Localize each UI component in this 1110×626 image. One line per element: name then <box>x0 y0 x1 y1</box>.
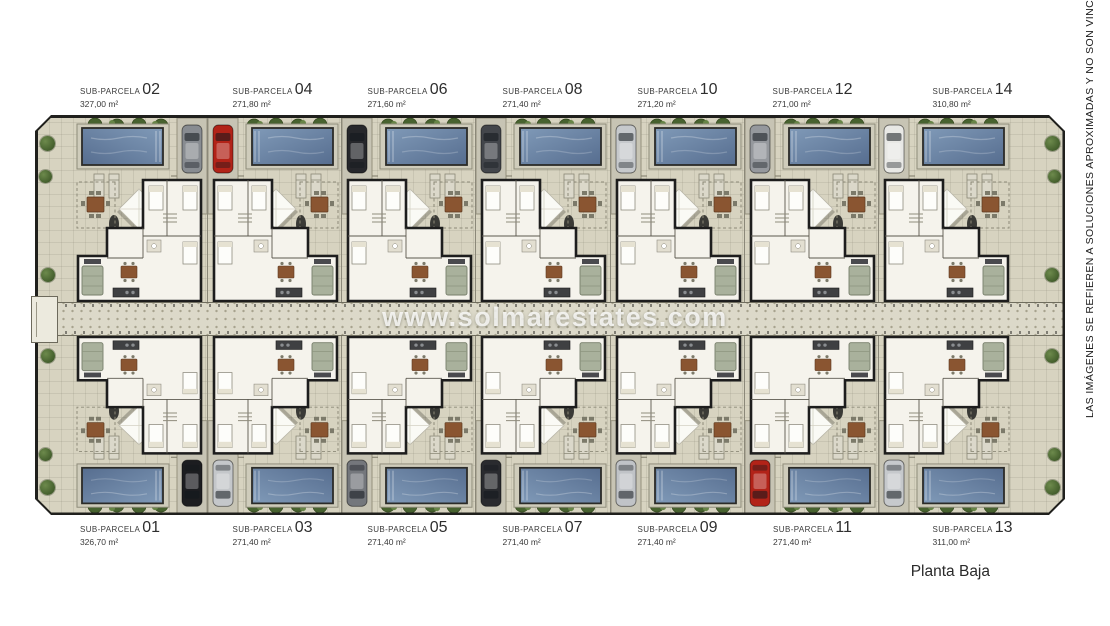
car-icon <box>884 460 904 506</box>
parcel-number: 04 <box>295 81 313 98</box>
parcel-tile-13 <box>878 336 1062 513</box>
parcel-label-prefix: SUB-PARCELA <box>637 87 697 96</box>
parcel-tile-07 <box>475 336 609 513</box>
car-icon <box>750 125 770 173</box>
edge-tree <box>39 448 52 461</box>
parcel-number: 07 <box>565 519 583 536</box>
parcel-label-prefix: SUB-PARCELA <box>232 87 292 96</box>
parcel-label-text: SUB-PARCELA06271,60 m² <box>367 82 447 109</box>
parcel-area: 271,00 m² <box>772 100 852 109</box>
floor-title: Planta Baja <box>911 563 990 581</box>
parcel-label-text: SUB-PARCELA08271,40 m² <box>502 82 582 109</box>
car-icon <box>616 125 636 173</box>
parcel-tile-06 <box>341 118 475 302</box>
parcel-label-text: SUB-PARCELA01326,70 m² <box>80 520 160 547</box>
parcel-label-08: SUB-PARCELA08271,40 m² <box>475 82 610 109</box>
parcel-number: 06 <box>430 81 448 98</box>
parcel-number: 10 <box>700 81 718 98</box>
parcel-number: 11 <box>835 519 852 536</box>
parcel-row-bottom <box>38 336 1063 513</box>
parcel-area: 271,80 m² <box>232 100 312 109</box>
edge-tree <box>1045 480 1060 495</box>
car-icon <box>213 460 233 506</box>
parcel-number: 09 <box>700 519 718 536</box>
parcel-area: 271,40 m² <box>502 100 582 109</box>
pool <box>649 463 741 506</box>
parcel-label-09: SUB-PARCELA09271,40 m² <box>610 520 745 547</box>
car-icon <box>347 125 367 173</box>
parcel-area: 311,00 m² <box>932 538 1012 547</box>
parcel-label-prefix: SUB-PARCELA <box>637 525 697 534</box>
car-icon <box>884 125 904 173</box>
edge-tree <box>39 170 52 183</box>
parcel-label-14: SUB-PARCELA14310,80 m² <box>880 82 1065 109</box>
car-icon <box>347 460 367 506</box>
parcel-tile-08 <box>475 118 609 302</box>
parcel-tile-04 <box>207 118 341 302</box>
parcel-label-prefix: SUB-PARCELA <box>232 525 292 534</box>
parcel-number: 02 <box>142 81 160 98</box>
parcel-label-text: SUB-PARCELA14310,80 m² <box>932 82 1012 109</box>
parcel-label-13: SUB-PARCELA13311,00 m² <box>880 520 1065 547</box>
pool <box>77 124 169 169</box>
pool <box>380 124 472 169</box>
parcel-number: 08 <box>565 81 583 98</box>
parcel-label-text: SUB-PARCELA13311,00 m² <box>932 520 1012 547</box>
parcel-area: 271,40 m² <box>773 538 852 547</box>
parcel-label-06: SUB-PARCELA06271,60 m² <box>340 82 475 109</box>
edge-tree <box>40 136 55 151</box>
edge-tree <box>1048 448 1061 461</box>
parcel-label-text: SUB-PARCELA09271,40 m² <box>637 520 717 547</box>
parcel-number: 05 <box>430 519 448 536</box>
edge-tree <box>41 268 55 282</box>
parcel-label-text: SUB-PARCELA02327,00 m² <box>80 82 160 109</box>
car-icon <box>182 125 202 173</box>
parcel-label-11: SUB-PARCELA11271,40 m² <box>745 520 880 547</box>
pool <box>917 124 1009 169</box>
parcel-label-03: SUB-PARCELA03271,40 m² <box>205 520 340 547</box>
parcel-area: 327,00 m² <box>80 100 160 109</box>
parcel-number: 01 <box>142 519 160 536</box>
parcel-row-top <box>38 118 1063 302</box>
parcel-tile-05 <box>341 336 475 513</box>
parcel-label-text: SUB-PARCELA04271,80 m² <box>232 82 312 109</box>
parcel-label-prefix: SUB-PARCELA <box>773 525 833 534</box>
car-icon <box>750 460 770 506</box>
car-icon <box>213 125 233 173</box>
parcel-area: 271,40 m² <box>637 538 717 547</box>
disclaimer-vertical-text: LAS IMÁGENES SE REFIEREN A SOLUCIONES AP… <box>1084 0 1096 418</box>
parcel-label-text: SUB-PARCELA11271,40 m² <box>773 520 852 547</box>
site-plan-page: SUB-PARCELA02327,00 m²SUB-PARCELA04271,8… <box>0 0 1110 626</box>
parcel-label-prefix: SUB-PARCELA <box>502 87 562 96</box>
parcel-label-text: SUB-PARCELA05271,40 m² <box>367 520 447 547</box>
parcel-label-07: SUB-PARCELA07271,40 m² <box>475 520 610 547</box>
pool <box>649 124 741 169</box>
parcel-tile-10 <box>610 118 744 302</box>
parcel-tile-11 <box>744 336 878 513</box>
parcel-label-prefix: SUB-PARCELA <box>502 525 562 534</box>
pool <box>917 463 1009 506</box>
car-icon <box>182 460 202 506</box>
parcel-label-prefix: SUB-PARCELA <box>80 525 140 534</box>
edge-tree <box>1045 349 1059 363</box>
parcel-area: 271,40 m² <box>232 538 312 547</box>
edge-tree <box>40 480 55 495</box>
parcel-label-text: SUB-PARCELA12271,00 m² <box>772 82 852 109</box>
parcel-tile-02 <box>38 118 207 302</box>
pool <box>246 124 338 169</box>
parcel-label-prefix: SUB-PARCELA <box>932 525 992 534</box>
pool <box>77 463 169 506</box>
edge-tree <box>41 349 55 363</box>
parcel-number: 14 <box>995 81 1013 98</box>
pool <box>783 463 875 506</box>
pool <box>246 463 338 506</box>
parcel-label-prefix: SUB-PARCELA <box>80 87 140 96</box>
parcel-label-prefix: SUB-PARCELA <box>367 87 427 96</box>
pool <box>783 124 875 169</box>
parcel-label-05: SUB-PARCELA05271,40 m² <box>340 520 475 547</box>
car-icon <box>481 460 501 506</box>
parcel-area: 271,40 m² <box>367 538 447 547</box>
parcel-label-12: SUB-PARCELA12271,00 m² <box>745 82 880 109</box>
sidewalk-detail-box <box>31 296 58 343</box>
parcel-number: 03 <box>295 519 313 536</box>
parcel-label-text: SUB-PARCELA07271,40 m² <box>502 520 582 547</box>
parcel-label-prefix: SUB-PARCELA <box>772 87 832 96</box>
parcel-area: 310,80 m² <box>932 100 1012 109</box>
parcel-label-prefix: SUB-PARCELA <box>367 525 427 534</box>
parcel-label-02: SUB-PARCELA02327,00 m² <box>35 82 205 109</box>
edge-tree <box>1045 268 1059 282</box>
parcel-tile-12 <box>744 118 878 302</box>
parcel-tile-09 <box>610 336 744 513</box>
parcel-label-10: SUB-PARCELA10271,20 m² <box>610 82 745 109</box>
pool <box>514 124 606 169</box>
watermark: www.solmarestates.com <box>382 302 728 333</box>
parcel-area: 271,20 m² <box>637 100 717 109</box>
parcel-label-text: SUB-PARCELA03271,40 m² <box>232 520 312 547</box>
edge-tree <box>1045 136 1060 151</box>
parcel-area: 271,40 m² <box>502 538 582 547</box>
parcel-label-prefix: SUB-PARCELA <box>932 87 992 96</box>
parcel-tile-03 <box>207 336 341 513</box>
car-icon <box>481 125 501 173</box>
parcel-area: 326,70 m² <box>80 538 160 547</box>
parcel-number: 12 <box>835 81 853 98</box>
parcel-label-text: SUB-PARCELA10271,20 m² <box>637 82 717 109</box>
pool <box>380 463 472 506</box>
parcel-number: 13 <box>995 519 1013 536</box>
parcel-tile-14 <box>878 118 1062 302</box>
car-icon <box>616 460 636 506</box>
edge-tree <box>1048 170 1061 183</box>
pool <box>514 463 606 506</box>
parcel-label-04: SUB-PARCELA04271,80 m² <box>205 82 340 109</box>
parcel-label-01: SUB-PARCELA01326,70 m² <box>35 520 205 547</box>
parcel-tile-01 <box>38 336 207 513</box>
parcel-area: 271,60 m² <box>367 100 447 109</box>
